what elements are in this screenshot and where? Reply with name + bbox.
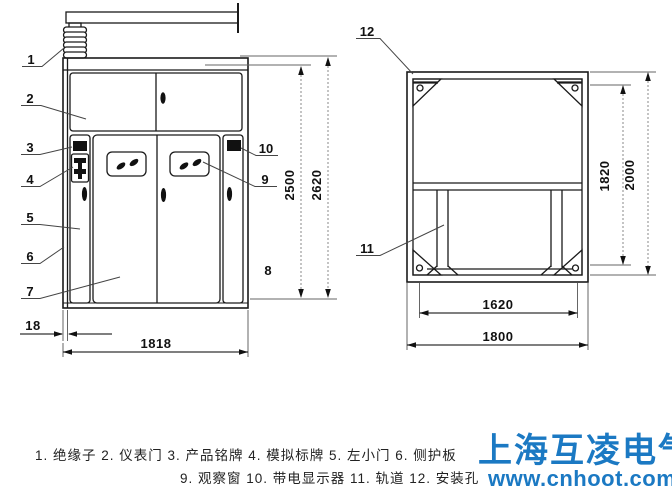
plan-view <box>407 72 588 282</box>
technical-drawing: 1 2 3 4 5 6 7 8 9 10 11 12 2500 2620 181… <box>0 0 672 497</box>
callout-1: 1 <box>27 52 34 67</box>
mounting-hole-gusset <box>413 79 441 106</box>
dim-plan-total-height: 2000 <box>622 160 637 191</box>
dim-front-width: 1818 <box>141 336 172 351</box>
callout-3: 3 <box>26 140 33 155</box>
door-handle-icon <box>82 187 87 201</box>
dim-front-side-offset: 18 <box>25 318 40 333</box>
drawing-canvas: 1 2 3 4 5 6 7 8 9 10 11 12 2500 2620 181… <box>0 0 672 497</box>
callout-6: 6 <box>26 249 33 264</box>
mimic-panel <box>72 154 89 182</box>
watermark-brand: 上海互凌电气 <box>478 434 672 468</box>
callout-5: 5 <box>26 210 33 225</box>
door-handle-icon <box>227 187 232 201</box>
observation-window <box>107 152 146 176</box>
live-display <box>227 140 241 151</box>
callout-9: 9 <box>261 172 268 187</box>
callout-4: 4 <box>26 172 34 187</box>
mounting-hole-gusset <box>554 79 582 106</box>
callout-10: 10 <box>259 141 273 156</box>
main-doors <box>93 135 220 303</box>
watermark-site: www.cnhoot.com <box>488 468 672 490</box>
right-small-door <box>223 135 243 303</box>
door-handle-icon <box>160 92 165 104</box>
callout-11: 11 <box>360 241 374 256</box>
legend-line-1: 1. 绝缘子 2. 仪表门 3. 产品铭牌 4. 模拟标牌 5. 左小门 6. … <box>35 444 457 464</box>
callout-2: 2 <box>26 91 33 106</box>
front-view <box>63 3 248 308</box>
insulator-icon <box>64 23 87 58</box>
dim-front-total-height: 2620 <box>309 170 324 201</box>
callout-leaders <box>21 39 444 299</box>
instrument-door <box>70 73 242 131</box>
callout-12: 12 <box>360 24 374 39</box>
cross-member <box>413 183 582 190</box>
plan-dimensions <box>407 72 656 350</box>
product-nameplate <box>73 141 87 151</box>
legend-line-2: 9. 观察窗 10. 带电显示器 11. 轨道 12. 安装孔 <box>180 467 479 487</box>
rails <box>427 190 572 275</box>
dim-plan-frame-height: 1820 <box>597 161 612 192</box>
left-small-door <box>70 135 90 303</box>
dim-front-door-height: 2500 <box>282 170 297 201</box>
busbar <box>66 3 238 33</box>
dimension-labels: 2500 2620 1818 18 1820 2000 1620 1800 <box>25 160 637 351</box>
observation-window <box>170 152 209 176</box>
dim-plan-total-width: 1800 <box>483 329 514 344</box>
door-handle-icon <box>161 188 166 202</box>
callout-7: 7 <box>26 284 33 299</box>
dim-plan-inner-width: 1620 <box>483 297 514 312</box>
callout-8: 8 <box>264 263 271 278</box>
